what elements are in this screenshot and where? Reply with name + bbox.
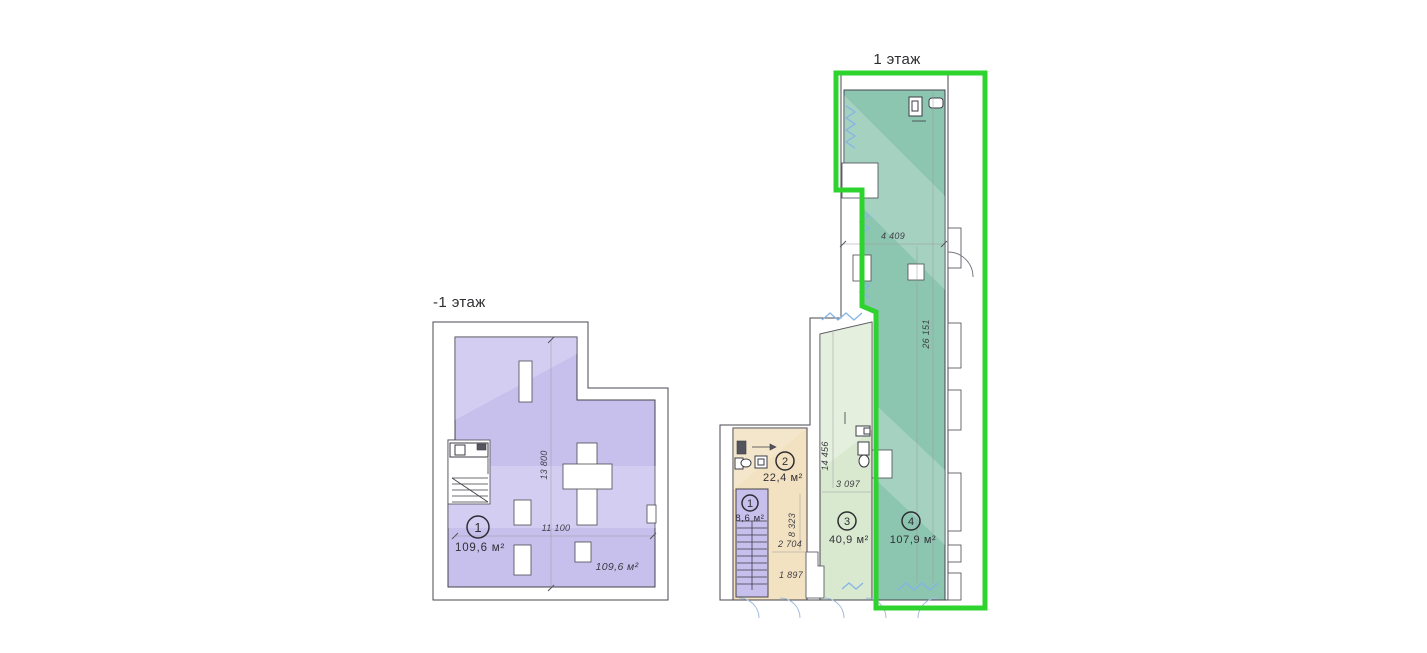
dim-mid-width: 3 097 (836, 479, 861, 489)
unit-area: 8,6 м² (735, 513, 764, 524)
unit-area: 40,9 м² (829, 534, 869, 546)
sink-icon (455, 445, 465, 455)
staircase-room (448, 440, 490, 504)
sink-icon (929, 98, 943, 108)
dim-top-width: 4 409 (881, 231, 905, 241)
floor-minus1-plan: -1 этаж (433, 294, 668, 600)
faucet-icon (864, 428, 870, 434)
shaft-icon (737, 441, 746, 454)
unit-area: 107,9 м² (890, 534, 937, 546)
unit-number: 3 (844, 516, 850, 528)
dim-right-height: 26 151 (921, 319, 931, 349)
toilet-bowl-icon (741, 459, 751, 467)
dim-low-height: 8 323 (787, 513, 797, 537)
floor-minus1-title: -1 этаж (433, 294, 486, 311)
toilet-bowl-icon (859, 455, 869, 467)
toilet-tank-icon (858, 442, 869, 455)
unit-number: 4 (908, 516, 914, 528)
unit-number: 1 (747, 498, 753, 510)
dim-low-width: 2 704 (777, 539, 802, 549)
dim-width-label: 11 100 (542, 523, 571, 533)
floorplan-page: -1 этаж (0, 0, 1427, 653)
floor-1-plan: 1 этаж (720, 51, 985, 618)
unit-area: 109,6 м² (455, 542, 505, 554)
dim-mid-height: 14 456 (820, 441, 830, 470)
boiler-inner (912, 101, 918, 111)
wall-pilasters (948, 228, 961, 600)
column-cutout (908, 264, 924, 280)
faucet-icon (758, 459, 764, 465)
floor-1-title: 1 этаж (873, 51, 920, 68)
unit-area: 22,4 м² (763, 472, 803, 484)
unit-number: 1 (474, 520, 481, 535)
area-note: 109,6 м² (595, 561, 638, 573)
stove-icon (477, 444, 486, 450)
dim-bottom-width: 1 897 (779, 570, 804, 580)
dim-height-label: 13 800 (539, 450, 549, 479)
floorplans-canvas: -1 этаж (0, 0, 1427, 653)
unit-number: 2 (782, 456, 788, 468)
